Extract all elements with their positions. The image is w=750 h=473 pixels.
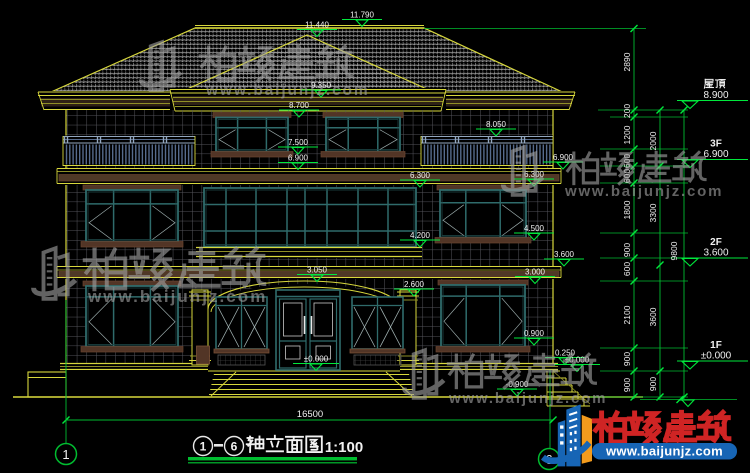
svg-text:3.000: 3.000 [525,268,546,277]
svg-text:3300: 3300 [648,203,658,222]
svg-text:11.440: 11.440 [305,21,329,30]
svg-text:3.600: 3.600 [554,250,575,259]
svg-text:1: 1 [200,440,207,454]
svg-text:1F: 1F [710,340,722,351]
svg-text:2890: 2890 [622,52,632,71]
svg-text:3F: 3F [710,139,722,150]
svg-text:8.700: 8.700 [289,101,310,110]
svg-text:2F: 2F [710,237,722,248]
svg-text:3.050: 3.050 [307,266,328,275]
svg-text:www.baijunjz.com: www.baijunjz.com [564,183,723,200]
svg-text:1800: 1800 [622,200,632,219]
svg-text:900: 900 [622,378,632,392]
svg-text:www.baijunjz.com: www.baijunjz.com [87,287,267,306]
svg-text:±0.000: ±0.000 [304,355,329,364]
svg-text:200: 200 [622,104,632,118]
svg-text:2000: 2000 [648,131,658,150]
svg-text:2100: 2100 [622,305,632,324]
svg-text:6.900: 6.900 [703,149,728,160]
svg-text:6: 6 [231,440,238,454]
svg-text:1: 1 [62,447,69,462]
svg-text:1:100: 1:100 [325,439,363,456]
svg-text:3600: 3600 [648,307,658,326]
svg-text:7.500: 7.500 [288,138,309,147]
svg-text:±0.000: ±0.000 [701,351,732,362]
svg-text:900: 900 [622,243,632,257]
svg-text:900: 900 [648,377,658,391]
svg-text:8.050: 8.050 [486,120,507,129]
svg-text:0.900: 0.900 [524,329,545,338]
svg-text:11.790: 11.790 [350,11,374,20]
svg-text:2.600: 2.600 [404,280,425,289]
svg-text:8.900: 8.900 [703,90,728,101]
svg-text:600: 600 [622,262,632,276]
svg-text:www.baijunjz.com: www.baijunjz.com [205,82,370,99]
svg-text:4.500: 4.500 [524,224,545,233]
svg-text:6.300: 6.300 [410,171,431,180]
svg-text:900: 900 [622,352,632,366]
svg-text:3.600: 3.600 [703,248,728,259]
svg-text:1200: 1200 [622,125,632,144]
svg-text:6.900: 6.900 [288,154,309,163]
svg-text:www.baijunjz.com: www.baijunjz.com [605,444,723,459]
svg-text:4.200: 4.200 [410,231,431,240]
svg-text:www.baijunjz.com: www.baijunjz.com [448,390,607,407]
svg-text:16500: 16500 [297,409,323,420]
